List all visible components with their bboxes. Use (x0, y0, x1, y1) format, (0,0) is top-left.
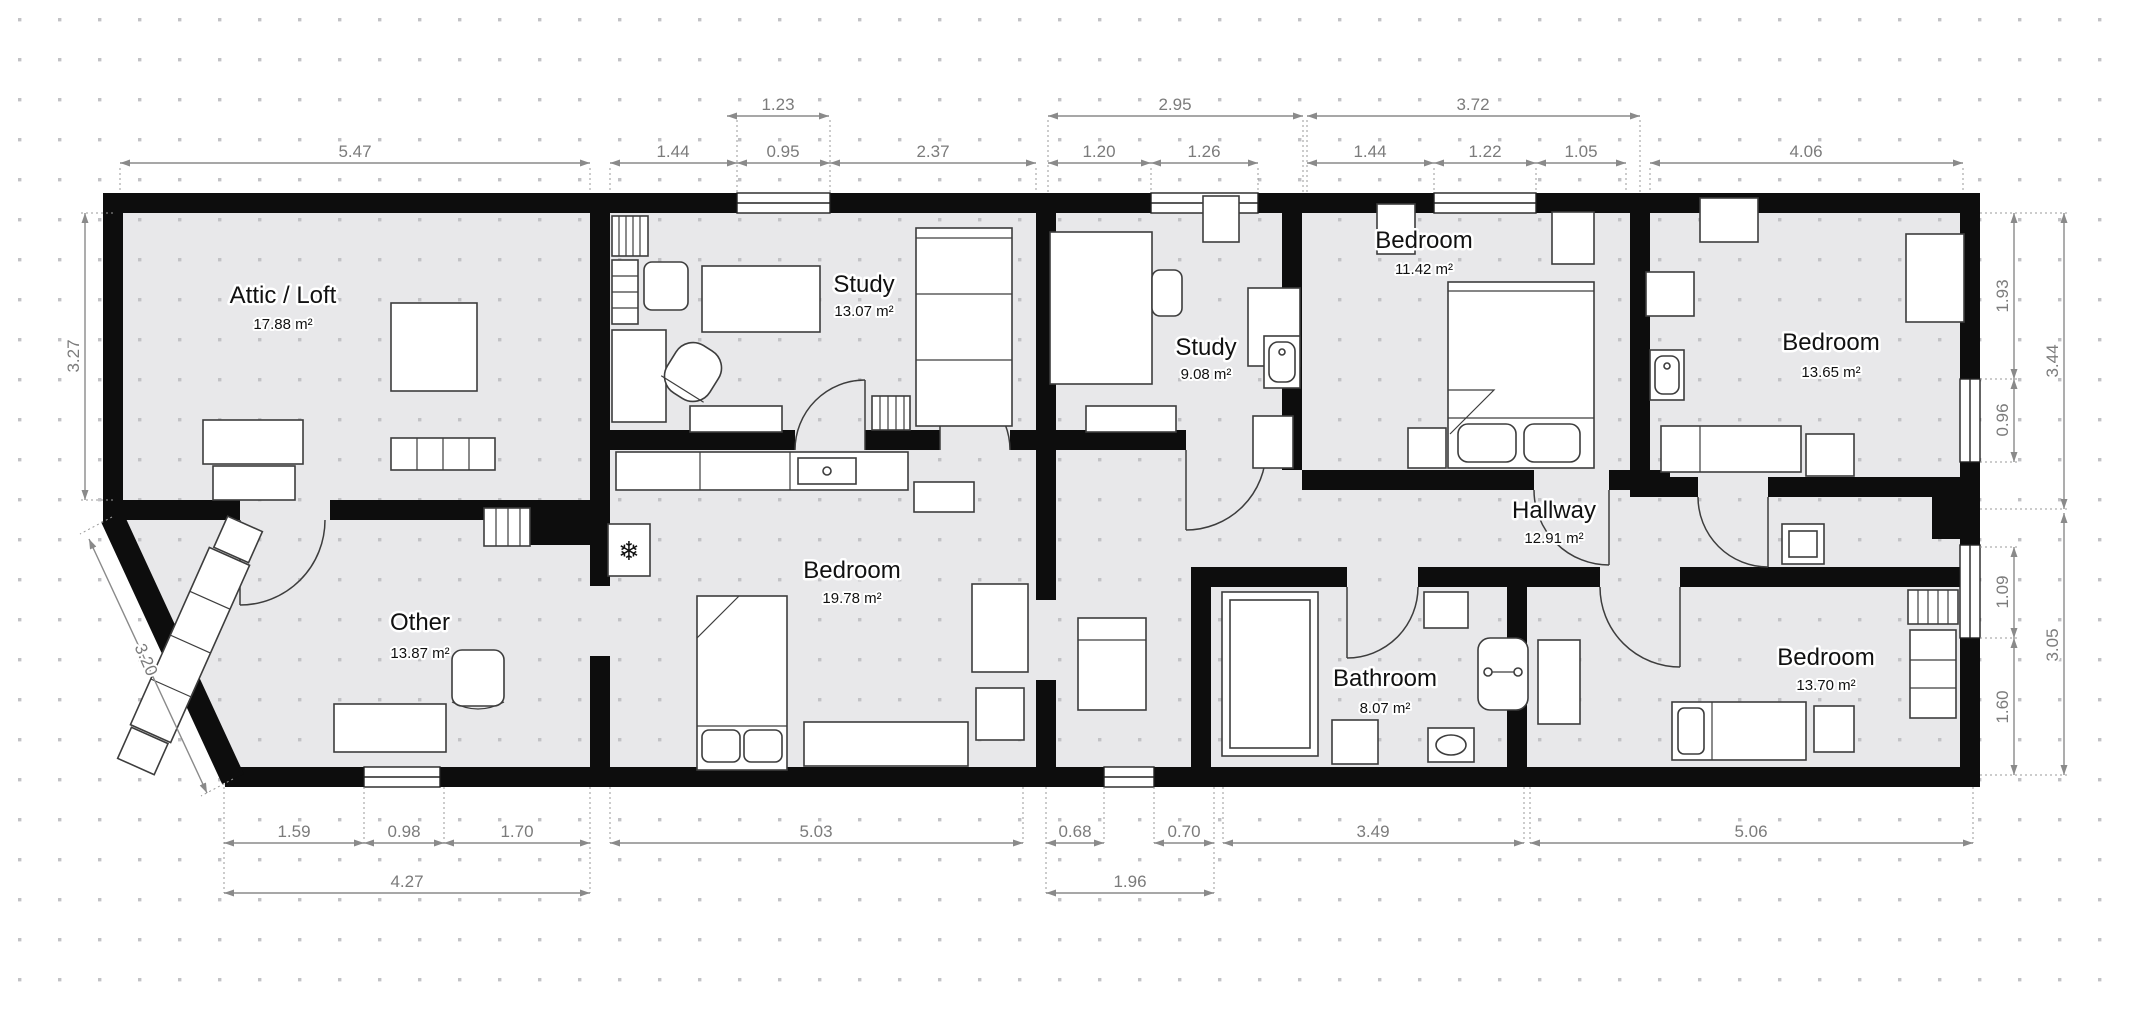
nightstand-icon (1408, 428, 1446, 468)
tall-cabinet-icon (1910, 630, 1956, 718)
svg-text:0.96: 0.96 (1993, 403, 2012, 436)
window (737, 193, 830, 213)
shelf-icon (612, 260, 638, 324)
svg-text:9.08 m²: 9.08 m² (1181, 366, 1232, 383)
washbasin-icon (1650, 350, 1684, 400)
single-bed-icon (697, 596, 787, 770)
svg-text:3.44: 3.44 (2043, 344, 2062, 377)
svg-text:Bedroom: Bedroom (803, 557, 900, 584)
wardrobe-icon (972, 584, 1028, 672)
svg-text:Study: Study (833, 271, 894, 298)
table-icon (334, 704, 446, 752)
window (364, 767, 440, 787)
table-icon (702, 266, 820, 332)
pillow-icon (702, 730, 740, 762)
stairs-icon (612, 216, 648, 256)
svg-text:Attic / Loft: Attic / Loft (230, 282, 337, 309)
counter-icon (616, 452, 908, 490)
cabinet-icon (1253, 416, 1293, 468)
svg-text:17.88 m²: 17.88 m² (253, 316, 312, 333)
cabinet-icon (1782, 524, 1824, 564)
svg-text:1.44: 1.44 (1353, 142, 1386, 161)
washbasin-icon (1264, 336, 1300, 388)
svg-text:1.23: 1.23 (761, 95, 794, 114)
sideboard-icon (391, 438, 495, 470)
svg-text:13.87 m²: 13.87 m² (390, 645, 449, 662)
armchair-icon (644, 262, 688, 310)
armchair-icon (452, 650, 504, 709)
window (1960, 379, 1980, 462)
svg-text:3.05: 3.05 (2043, 628, 2062, 661)
sideboard-icon (1086, 406, 1176, 432)
wardrobe-icon (916, 228, 1012, 426)
svg-text:1.60: 1.60 (1993, 690, 2012, 723)
svg-text:12.91 m²: 12.91 m² (1524, 530, 1583, 547)
nightstand-icon (1814, 706, 1854, 752)
pillow-icon (1458, 424, 1516, 462)
wardrobe-icon (1906, 234, 1964, 322)
window (1104, 767, 1154, 787)
pillow-icon (744, 730, 782, 762)
svg-text:1.05: 1.05 (1564, 142, 1597, 161)
cabinet-icon (1203, 196, 1239, 242)
svg-text:0.98: 0.98 (387, 822, 420, 841)
svg-text:3.27: 3.27 (64, 339, 83, 372)
room-label-hallway[interactable]: Hallway 12.91 m² (1512, 497, 1596, 547)
svg-text:1.70: 1.70 (500, 822, 533, 841)
svg-text:5.03: 5.03 (799, 822, 832, 841)
svg-text:5.06: 5.06 (1734, 822, 1767, 841)
svg-text:2.37: 2.37 (916, 142, 949, 161)
svg-text:1.20: 1.20 (1082, 142, 1115, 161)
chair-icon (1152, 270, 1182, 316)
cabinet-icon (1538, 640, 1580, 724)
svg-text:Bedroom: Bedroom (1777, 644, 1874, 671)
svg-text:1.93: 1.93 (1993, 279, 2012, 312)
cabinet-icon (976, 688, 1024, 740)
svg-text:1.59: 1.59 (277, 822, 310, 841)
room-label-study-2[interactable]: Study 9.08 m² (1175, 334, 1236, 383)
radiator-icon (1908, 590, 1958, 624)
cabinet-icon (1332, 720, 1378, 764)
floorplan-canvas[interactable]: ❄ Attic / Loft 17.88 m² Study 13.07 m² S… (0, 0, 2138, 1012)
single-bed-icon (1672, 702, 1806, 760)
svg-text:1.96: 1.96 (1113, 872, 1146, 891)
table-icon (804, 722, 968, 766)
svg-text:11.42 m²: 11.42 m² (1395, 261, 1453, 278)
svg-text:Other: Other (390, 609, 450, 636)
svg-text:0.95: 0.95 (766, 142, 799, 161)
svg-text:2.95: 2.95 (1158, 95, 1191, 114)
dresser-icon (203, 420, 303, 500)
radiator-icon (872, 396, 910, 430)
desk-icon (1050, 232, 1152, 384)
floorplan-svg[interactable]: ❄ Attic / Loft 17.88 m² Study 13.07 m² S… (0, 0, 2138, 1012)
sink-icon (1428, 728, 1474, 762)
svg-text:19.78 m²: 19.78 m² (822, 590, 881, 607)
cabinet-icon (1078, 618, 1146, 710)
svg-text:4.27: 4.27 (390, 872, 423, 891)
side-table-icon (914, 482, 974, 512)
shower-icon (1222, 592, 1318, 756)
svg-text:13.07 m²: 13.07 m² (834, 303, 893, 320)
towel-radiator-icon (1478, 638, 1528, 710)
cabinet-icon (1646, 272, 1694, 316)
svg-text:4.06: 4.06 (1789, 142, 1822, 161)
double-bed-icon (1448, 282, 1594, 468)
pillow-icon (1678, 708, 1704, 754)
pillow-icon (1524, 424, 1580, 462)
svg-text:Bedroom: Bedroom (1782, 329, 1879, 356)
stairs-icon (484, 508, 530, 546)
svg-text:8.07 m²: 8.07 m² (1360, 700, 1411, 717)
svg-text:Bathroom: Bathroom (1333, 665, 1437, 692)
svg-text:5.47: 5.47 (338, 142, 371, 161)
svg-text:1.44: 1.44 (656, 142, 689, 161)
window (1960, 545, 1980, 638)
freezer-glyph: ❄ (618, 537, 640, 567)
window (1434, 193, 1536, 213)
svg-text:1.26: 1.26 (1187, 142, 1220, 161)
svg-text:13.70 m²: 13.70 m² (1796, 677, 1855, 694)
side-table-icon (1806, 434, 1854, 476)
cabinet-icon (1552, 212, 1594, 264)
desk-icon (612, 330, 666, 422)
table-icon (391, 303, 477, 391)
svg-text:Hallway: Hallway (1512, 497, 1596, 524)
single-bed-icon (1661, 426, 1801, 472)
svg-text:0.70: 0.70 (1167, 822, 1200, 841)
svg-text:Bedroom: Bedroom (1375, 227, 1472, 254)
washer-icon (1424, 592, 1468, 628)
svg-text:1.22: 1.22 (1468, 142, 1501, 161)
svg-text:1.09: 1.09 (1993, 575, 2012, 608)
room-label-study-1[interactable]: Study 13.07 m² (833, 271, 894, 320)
svg-text:0.68: 0.68 (1058, 822, 1091, 841)
svg-text:3.72: 3.72 (1456, 95, 1489, 114)
freezer-icon: ❄ (608, 524, 650, 576)
svg-text:13.65 m²: 13.65 m² (1801, 364, 1860, 381)
svg-text:3.49: 3.49 (1356, 822, 1389, 841)
cabinet-icon (1700, 198, 1758, 242)
low-shelf-icon (690, 406, 782, 432)
room-label-other[interactable]: Other 13.87 m² (390, 609, 450, 662)
svg-text:Study: Study (1175, 334, 1236, 361)
